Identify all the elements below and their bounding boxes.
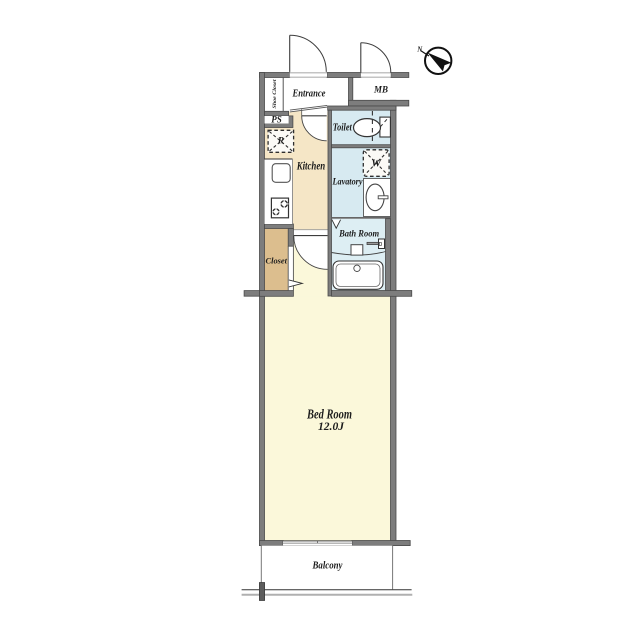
svg-text:Closet: Closet bbox=[266, 256, 288, 266]
svg-text:Entrance: Entrance bbox=[292, 89, 326, 100]
svg-text:Lavatory: Lavatory bbox=[332, 176, 364, 186]
svg-text:12.0J: 12.0J bbox=[318, 419, 345, 433]
svg-text:PS: PS bbox=[271, 114, 282, 124]
svg-text:Kitchen: Kitchen bbox=[296, 161, 325, 173]
svg-text:Toilet: Toilet bbox=[333, 123, 353, 134]
svg-text:R: R bbox=[277, 137, 284, 147]
svg-text:Balcony: Balcony bbox=[312, 561, 343, 572]
svg-text:N: N bbox=[416, 46, 423, 54]
svg-text:MB: MB bbox=[373, 86, 388, 96]
svg-text:W: W bbox=[371, 158, 382, 170]
svg-text:Bath Room: Bath Room bbox=[338, 230, 379, 240]
svg-text:Shoe Closet: Shoe Closet bbox=[272, 79, 278, 109]
